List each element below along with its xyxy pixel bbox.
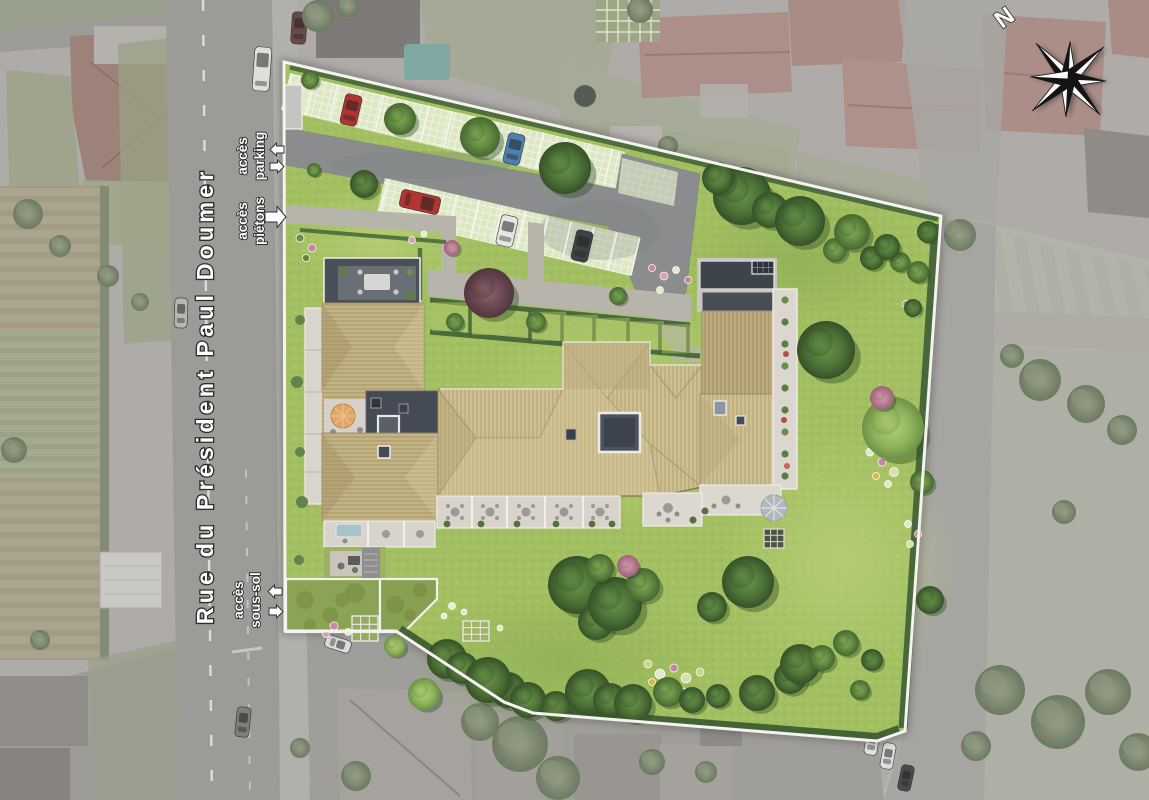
svg-text:parking: parking [252,132,267,181]
svg-text:sous-sol: sous-sol [248,572,263,628]
svg-text:accès: accès [235,137,250,175]
svg-text:accès: accès [235,202,250,240]
svg-text:accès: accès [231,581,246,619]
svg-text:Rue du Président Paul Doumer: Rue du Président Paul Doumer [192,168,218,625]
